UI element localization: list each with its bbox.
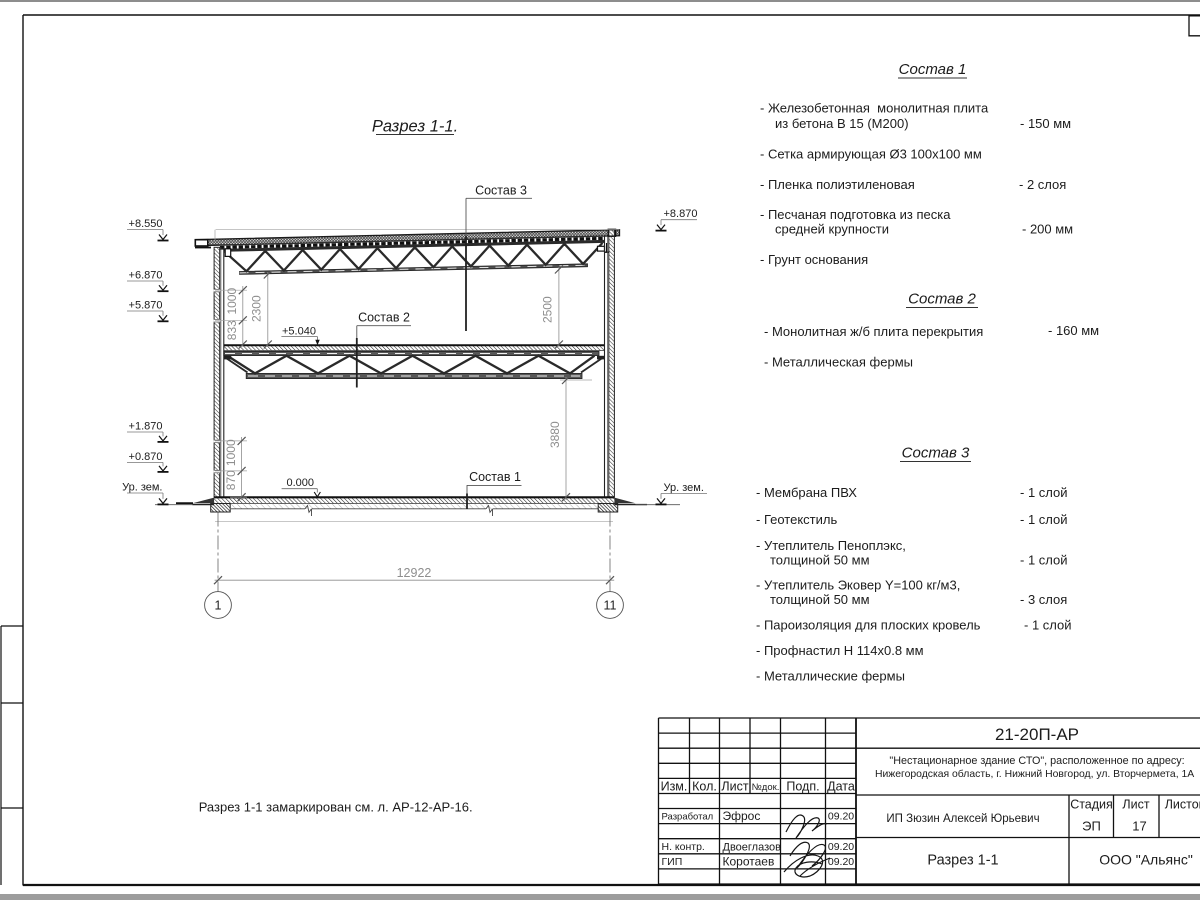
svg-text:- 1 слой: - 1 слой — [1020, 553, 1068, 568]
svg-text:+6.870: +6.870 — [129, 270, 163, 282]
svg-text:0.000: 0.000 — [287, 477, 315, 489]
svg-text:Дата: Дата — [827, 780, 855, 794]
svg-text:ЭП: ЭП — [1082, 819, 1101, 834]
svg-text:толщиной 50 мм: толщиной 50 мм — [770, 553, 870, 568]
svg-text:- Песчаная подготовка из песка: - Песчаная подготовка из песка — [760, 207, 951, 222]
svg-text:Подп.: Подп. — [786, 780, 819, 794]
svg-text:1: 1 — [215, 599, 222, 613]
svg-text:Состав 3: Состав 3 — [475, 184, 527, 198]
svg-text:Разрез 1-1 замаркирован см. л.: Разрез 1-1 замаркирован см. л. АР-12-АР-… — [199, 800, 473, 815]
svg-text:- 1 слой: - 1 слой — [1024, 618, 1072, 633]
svg-text:- Металлические фермы: - Металлические фермы — [756, 669, 905, 684]
svg-text:- Профнастил Н 114х0.8 мм: - Профнастил Н 114х0.8 мм — [756, 643, 924, 658]
svg-text:12922: 12922 — [397, 566, 432, 580]
svg-text:- Утеплитель Пеноплэкс,: - Утеплитель Пеноплэкс, — [756, 538, 906, 553]
svg-text:Состав 1: Состав 1 — [899, 61, 967, 78]
svg-text:- 1 слой: - 1 слой — [1020, 512, 1068, 527]
svg-text:Н. контр.: Н. контр. — [662, 841, 705, 853]
svg-text:1000: 1000 — [224, 439, 238, 466]
svg-text:- 2 слоя: - 2 слоя — [1019, 177, 1066, 192]
svg-text:Состав 2: Состав 2 — [908, 291, 976, 308]
svg-text:Ур. зем.: Ур. зем. — [664, 482, 704, 494]
svg-text:ООО "Альянс": ООО "Альянс" — [1099, 852, 1193, 868]
svg-text:- 200 мм: - 200 мм — [1022, 222, 1073, 237]
svg-text:870: 870 — [224, 470, 238, 490]
svg-text:Ур. зем.: Ур. зем. — [122, 482, 162, 494]
svg-text:Лист: Лист — [721, 780, 748, 794]
svg-text:+0.870: +0.870 — [129, 451, 163, 463]
svg-text:2300: 2300 — [250, 295, 264, 322]
svg-text:Кол.: Кол. — [692, 780, 717, 794]
svg-text:- Сетка армирующая Ø3 100х100: - Сетка армирующая Ø3 100х100 мм — [760, 147, 982, 162]
svg-text:09.20: 09.20 — [828, 841, 854, 853]
svg-text:17: 17 — [1132, 819, 1146, 834]
svg-text:- 160 мм: - 160 мм — [1048, 323, 1099, 338]
svg-text:+8.870: +8.870 — [664, 208, 698, 220]
svg-text:09.20: 09.20 — [828, 856, 854, 868]
svg-text:- Монолитная ж/б плита перекры: - Монолитная ж/б плита перекрытия — [764, 324, 983, 339]
svg-text:21-20П-АР: 21-20П-АР — [995, 725, 1079, 744]
svg-text:- Утеплитель Эковер Y=100 кг/м: - Утеплитель Эковер Y=100 кг/м3, — [756, 578, 960, 593]
svg-text:Листов: Листов — [1165, 798, 1200, 812]
svg-text:+5.040: +5.040 — [282, 326, 316, 338]
svg-text:Стадия: Стадия — [1070, 798, 1113, 812]
svg-text:"Нестационарное здание СТО", р: "Нестационарное здание СТО", расположенн… — [889, 755, 1184, 767]
svg-text:Разрез 1-1: Разрез 1-1 — [927, 853, 998, 869]
svg-text:Разрез 1-1.: Разрез 1-1. — [372, 118, 458, 136]
svg-text:- 150 мм: - 150 мм — [1020, 116, 1071, 131]
svg-text:средней крупности: средней крупности — [775, 222, 889, 237]
svg-text:Состав 3: Состав 3 — [902, 445, 970, 462]
svg-text:+5.870: +5.870 — [129, 300, 163, 312]
svg-text:+1.870: +1.870 — [129, 421, 163, 433]
svg-text:Состав 1: Состав 1 — [469, 470, 521, 484]
svg-text:- Металлическая фермы: - Металлическая фермы — [764, 355, 913, 370]
svg-text:Коротаев: Коротаев — [723, 854, 775, 868]
svg-text:- Пленка полиэтиленовая: - Пленка полиэтиленовая — [760, 177, 915, 192]
svg-text:Эфрос: Эфрос — [723, 809, 761, 823]
svg-text:3880: 3880 — [548, 421, 562, 448]
svg-text:833: 833 — [225, 320, 239, 340]
svg-text:ГИП: ГИП — [662, 856, 683, 868]
svg-text:Изм.: Изм. — [661, 780, 688, 794]
svg-text:Нижегородская область, г. Нижн: Нижегородская область, г. Нижний Новгоро… — [875, 768, 1194, 780]
svg-text:ИП Зюзин Алексей Юрьевич: ИП Зюзин Алексей Юрьевич — [886, 813, 1039, 825]
svg-text:- Железобетонная монолитная п: - Железобетонная монолитная плита — [760, 101, 989, 116]
svg-text:Состав 2: Состав 2 — [358, 311, 410, 325]
svg-text:Разработал: Разработал — [662, 812, 714, 823]
svg-text:09.20: 09.20 — [828, 811, 854, 823]
svg-text:Лист: Лист — [1122, 798, 1149, 812]
svg-text:1000: 1000 — [225, 288, 239, 315]
svg-text:- Мембрана ПВХ: - Мембрана ПВХ — [756, 485, 857, 500]
svg-text:- 1 слой: - 1 слой — [1020, 485, 1068, 500]
svg-text:2500: 2500 — [541, 296, 555, 323]
svg-text:толщиной 50 мм: толщиной 50 мм — [770, 592, 870, 607]
svg-text:11: 11 — [604, 599, 617, 613]
svg-text:- Геотекстиль: - Геотекстиль — [756, 512, 837, 527]
svg-text:№док.: №док. — [752, 782, 780, 793]
svg-text:- Пароизоляция для плоских кро: - Пароизоляция для плоских кровель — [756, 618, 981, 633]
svg-text:Двоеглазов: Двоеглазов — [723, 841, 782, 853]
svg-text:+8.550: +8.550 — [129, 218, 163, 230]
svg-text:- 3 слоя: - 3 слоя — [1020, 592, 1067, 607]
svg-text:- Грунт основания: - Грунт основания — [760, 252, 868, 267]
svg-text:из бетона В 15 (М200): из бетона В 15 (М200) — [775, 116, 909, 131]
